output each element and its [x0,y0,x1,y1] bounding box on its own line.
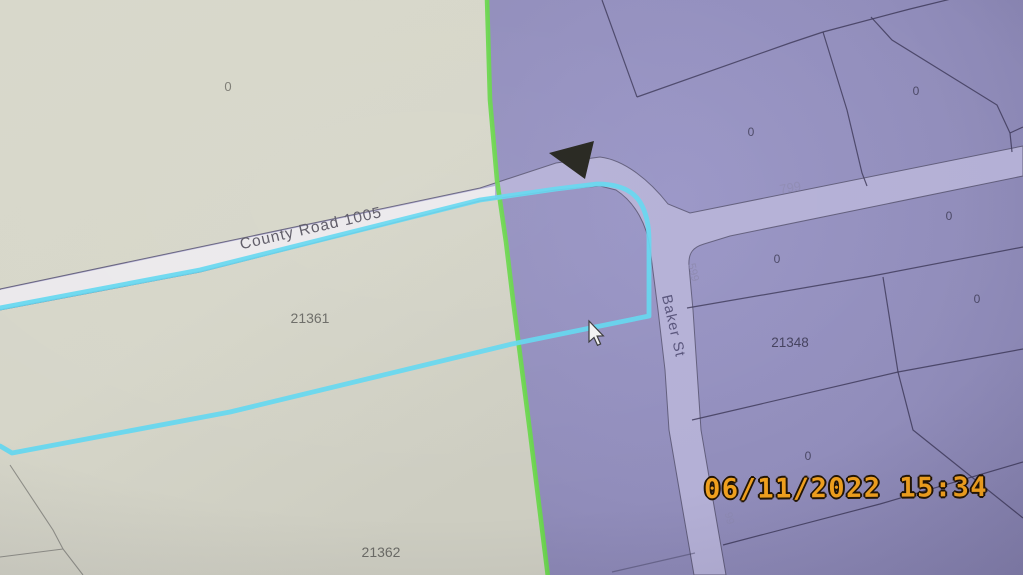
parcel-label-21362: 21362 [362,544,401,560]
parcel-label-zero: 0 [774,252,781,266]
parcel-label-zero: 0 [805,449,812,463]
parcel-label-zero: 0 [748,125,755,139]
timestamp-overlay: 06/11/2022 15:34 [704,472,988,505]
parcel-label-zero: 0 [946,209,953,223]
parcel-label-zero: 0 [913,84,920,98]
parcel-label-21361: 21361 [291,310,330,326]
parcel-label-zero: 0 [974,292,981,306]
parcel-label-21348: 21348 [771,335,809,350]
parcel-label-zero-left: 0 [224,79,231,94]
screen-photo: County Road 1005 799 Baker St 599 99 0 2… [0,0,1023,575]
